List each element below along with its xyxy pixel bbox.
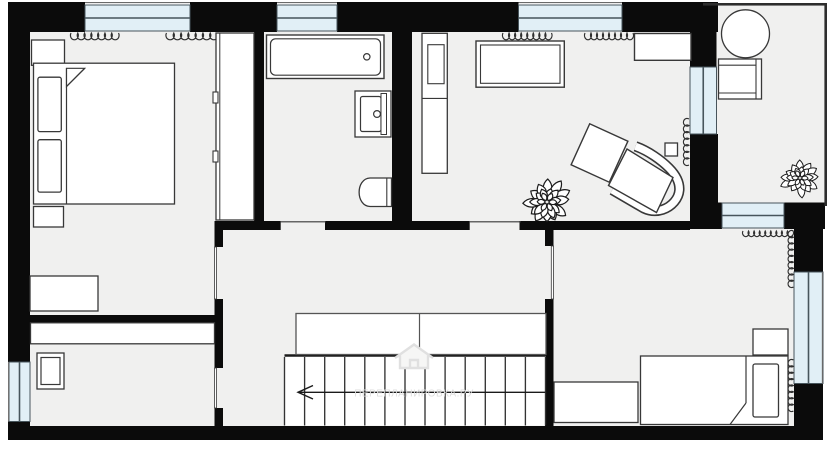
- svg-text:ПЕРЕПЛАНИРОВКА.РУ: ПЕРЕПЛАНИРОВКА.РУ: [354, 389, 474, 400]
